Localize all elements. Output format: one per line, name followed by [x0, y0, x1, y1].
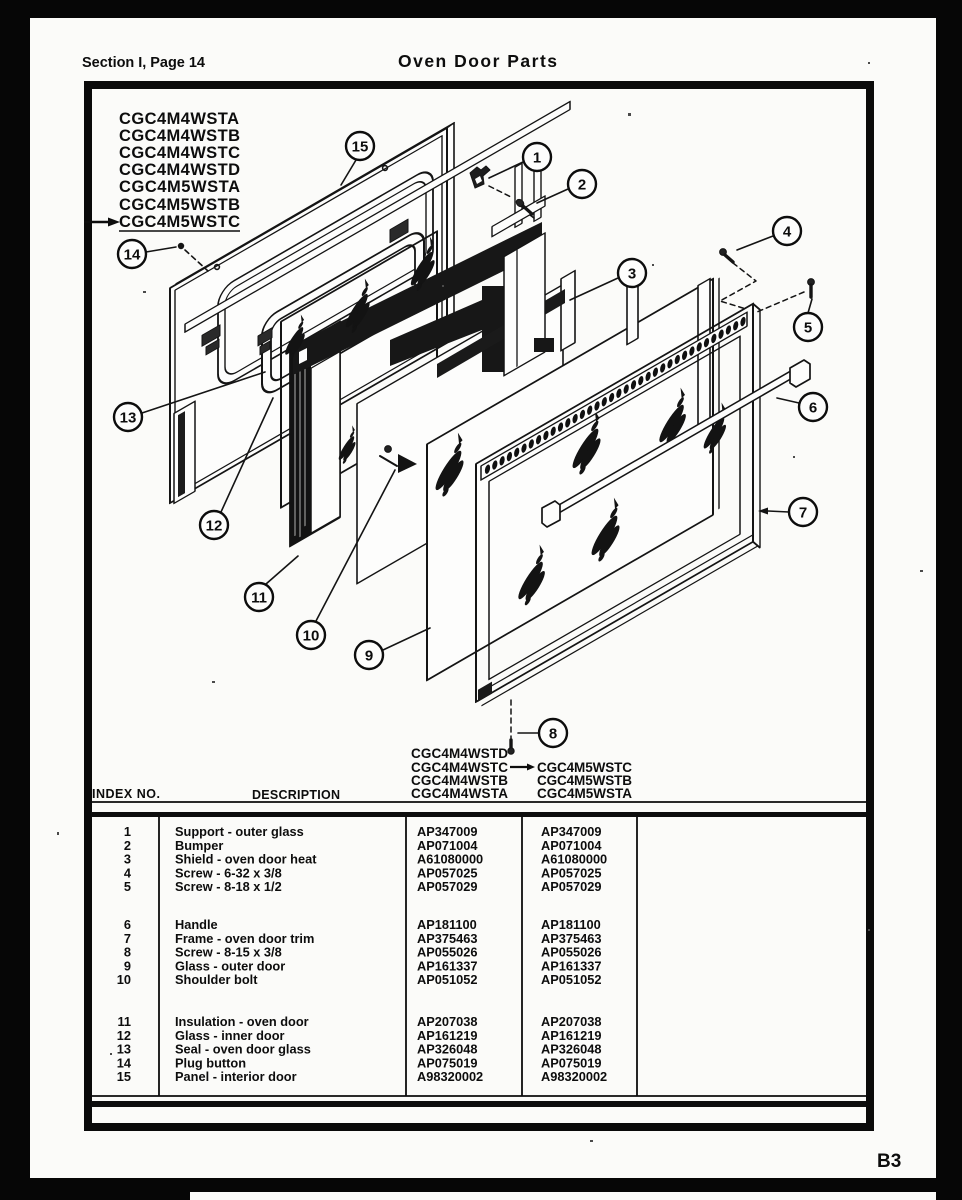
svg-text:AP181100: AP181100 [541, 917, 601, 932]
svg-text:Screw - 6-32 x 3/8: Screw - 6-32 x 3/8 [175, 865, 282, 880]
svg-text:15: 15 [117, 1069, 131, 1084]
svg-text:AP057029: AP057029 [541, 879, 601, 894]
svg-text:A98320002: A98320002 [541, 1069, 607, 1084]
svg-text:Support - outer glass: Support - outer glass [175, 824, 304, 839]
svg-text:3: 3 [124, 852, 131, 867]
svg-text:INDEX NO.: INDEX NO. [92, 787, 160, 801]
svg-text:AP075019: AP075019 [417, 1055, 477, 1070]
svg-text:AP375463: AP375463 [541, 931, 601, 946]
svg-text:Panel - interior door: Panel - interior door [175, 1069, 297, 1084]
svg-text:Bumper: Bumper [175, 838, 223, 853]
svg-text:AP161337: AP161337 [541, 958, 601, 973]
svg-text:CGC4M4WSTA: CGC4M4WSTA [411, 786, 508, 801]
svg-text:CGC4M5WSTA: CGC4M5WSTA [119, 178, 240, 196]
svg-text:Insulation - oven door: Insulation - oven door [175, 1014, 309, 1029]
svg-text:7: 7 [124, 931, 131, 946]
svg-text:8: 8 [124, 945, 131, 960]
svg-text:15: 15 [352, 139, 369, 156]
svg-text:6: 6 [809, 400, 817, 417]
svg-text:AP057025: AP057025 [541, 865, 601, 880]
svg-text:AP055026: AP055026 [541, 945, 601, 960]
svg-text:A98320002: A98320002 [417, 1069, 483, 1084]
svg-text:AP075019: AP075019 [541, 1055, 601, 1070]
svg-text:CGC4M5WSTC: CGC4M5WSTC [119, 213, 240, 231]
svg-text:Section I, Page 14: Section I, Page 14 [82, 55, 205, 71]
svg-text:AP207038: AP207038 [417, 1014, 477, 1029]
svg-text:Shield - oven door heat: Shield - oven door heat [175, 852, 317, 867]
svg-text:3: 3 [628, 266, 636, 283]
svg-text:CGC4M4WSTC: CGC4M4WSTC [119, 144, 240, 162]
svg-text:7: 7 [799, 505, 807, 522]
svg-text:Screw - 8-18 x 1/2: Screw - 8-18 x 1/2 [175, 879, 282, 894]
svg-text:4: 4 [124, 865, 132, 880]
svg-text:14: 14 [124, 247, 141, 264]
svg-text:DESCRIPTION: DESCRIPTION [252, 788, 340, 802]
svg-text:CGC4M4WSTB: CGC4M4WSTB [119, 127, 240, 145]
svg-text:Screw - 8-15 x 3/8: Screw - 8-15 x 3/8 [175, 945, 282, 960]
svg-text:AP055026: AP055026 [417, 945, 477, 960]
svg-text:2: 2 [578, 177, 586, 194]
svg-text:9: 9 [365, 648, 373, 665]
svg-text:AP161219: AP161219 [541, 1028, 601, 1043]
svg-text:AP161219: AP161219 [417, 1028, 477, 1043]
svg-text:Glass - inner door: Glass - inner door [175, 1028, 285, 1043]
svg-text:CGC4M4WSTD: CGC4M4WSTD [411, 746, 508, 761]
svg-text:Seal - oven door glass: Seal - oven door glass [175, 1042, 311, 1057]
svg-text:Handle: Handle [175, 917, 218, 932]
svg-text:B3: B3 [877, 1151, 901, 1172]
svg-text:AP071004: AP071004 [541, 838, 602, 853]
svg-text:AP347009: AP347009 [417, 824, 477, 839]
svg-text:A61080000: A61080000 [541, 852, 607, 867]
svg-text:2: 2 [124, 838, 131, 853]
svg-text:AP057029: AP057029 [417, 879, 477, 894]
svg-text:1: 1 [124, 824, 131, 839]
svg-text:12: 12 [206, 518, 223, 535]
svg-text:AP375463: AP375463 [417, 931, 477, 946]
svg-text:CGC4M4WSTA: CGC4M4WSTA [119, 110, 239, 128]
svg-text:AP057025: AP057025 [417, 865, 477, 880]
svg-text:1: 1 [533, 150, 541, 167]
svg-text:Shoulder bolt: Shoulder bolt [175, 972, 258, 987]
svg-text:CGC4M4WSTD: CGC4M4WSTD [119, 161, 240, 179]
svg-text:Frame - oven door trim: Frame - oven door trim [175, 931, 314, 946]
svg-text:AP347009: AP347009 [541, 824, 601, 839]
svg-text:Glass - outer door: Glass - outer door [175, 958, 285, 973]
svg-text:13: 13 [120, 410, 137, 427]
svg-text:AP326048: AP326048 [417, 1042, 477, 1057]
svg-text:4: 4 [783, 224, 792, 241]
svg-text:5: 5 [124, 879, 131, 894]
svg-text:11: 11 [117, 1014, 131, 1029]
svg-text:CGC4M5WSTA: CGC4M5WSTA [537, 786, 632, 801]
svg-text:6: 6 [124, 917, 131, 932]
svg-text:AP161337: AP161337 [417, 958, 477, 973]
svg-text:AP326048: AP326048 [541, 1042, 601, 1057]
svg-text:AP051052: AP051052 [417, 972, 477, 987]
svg-text:8: 8 [549, 726, 557, 743]
svg-text:Plug button: Plug button [175, 1055, 246, 1070]
svg-text:13: 13 [117, 1042, 131, 1057]
svg-text:Oven Door Parts: Oven Door Parts [398, 51, 557, 71]
svg-text:A61080000: A61080000 [417, 852, 483, 867]
svg-text:14: 14 [117, 1055, 132, 1070]
svg-text:CGC4M5WSTB: CGC4M5WSTB [119, 196, 240, 214]
svg-text:AP051052: AP051052 [541, 972, 601, 987]
svg-text:11: 11 [251, 590, 267, 607]
svg-text:10: 10 [303, 628, 320, 645]
svg-text:9: 9 [124, 958, 131, 973]
svg-text:AP181100: AP181100 [417, 917, 477, 932]
svg-text:AP207038: AP207038 [541, 1014, 601, 1029]
svg-text:10: 10 [117, 972, 131, 987]
svg-text:5: 5 [804, 320, 812, 337]
svg-text:12: 12 [117, 1028, 131, 1043]
svg-text:AP071004: AP071004 [417, 838, 478, 853]
